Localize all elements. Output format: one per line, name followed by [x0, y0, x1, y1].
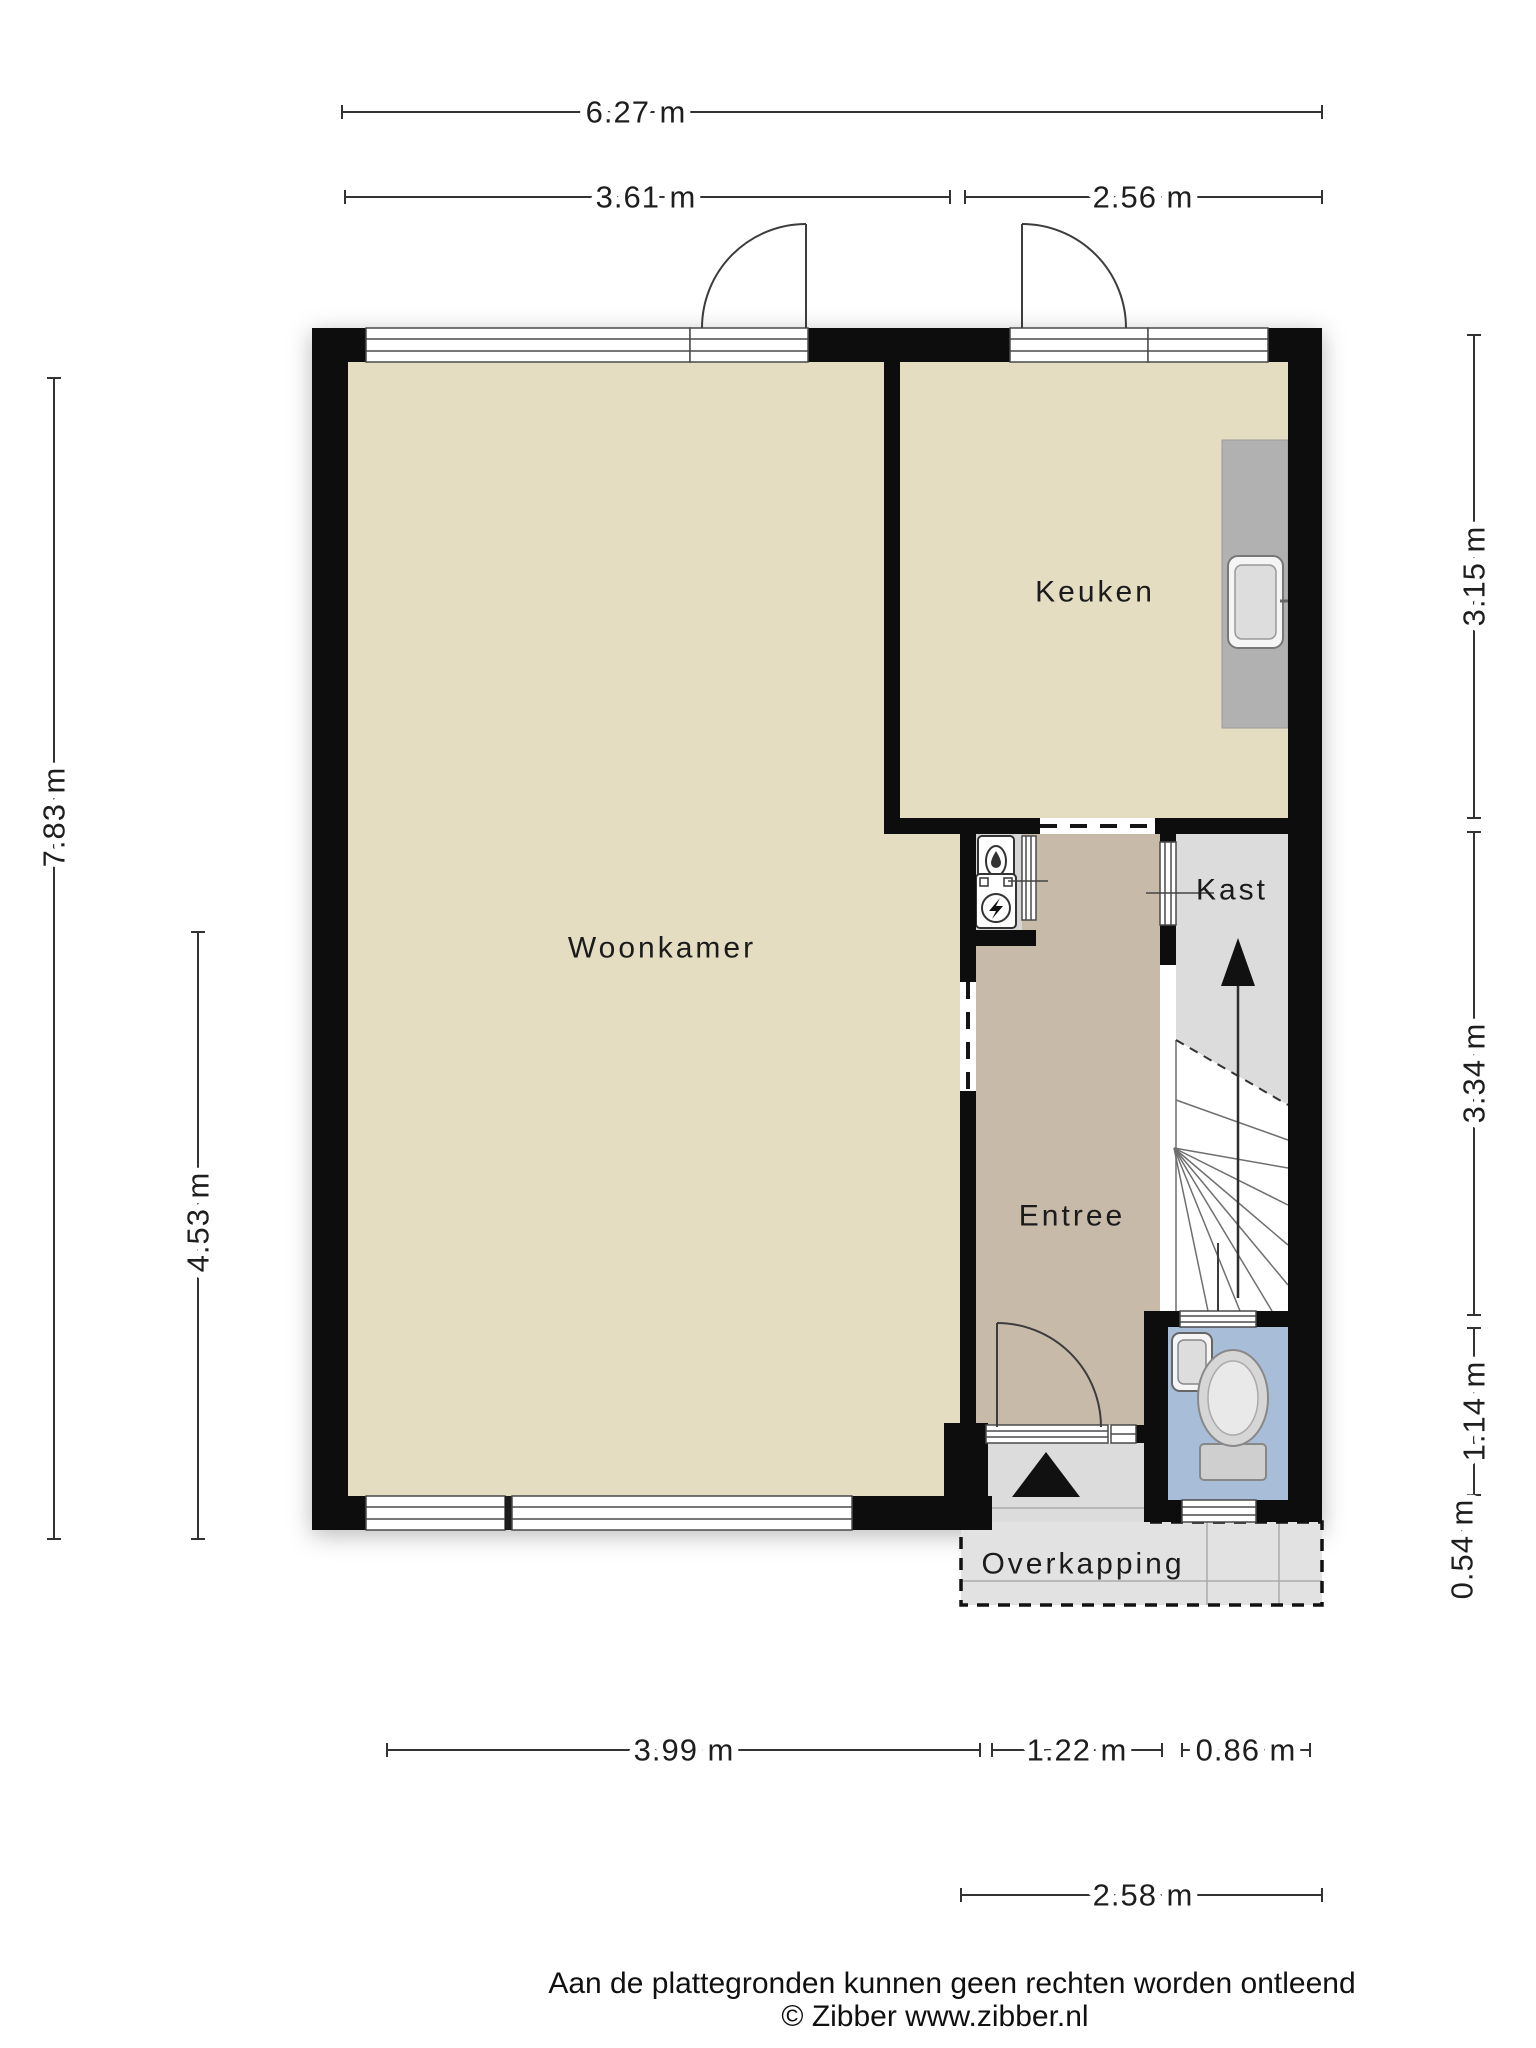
sink-basin [1235, 565, 1276, 639]
footer: Aan de plattegronden kunnen geen rechten… [548, 1967, 1355, 2033]
dimension-toilet-width: 0.86 m [1182, 1733, 1310, 1768]
wall-segment [944, 1423, 988, 1530]
dimension-label: 3.61 m [596, 180, 697, 215]
dimension-total-width: 6.27 m [342, 95, 1322, 130]
wall-woonkamer-keuken [884, 362, 900, 818]
dimension-label: 7.83 m [37, 767, 72, 868]
wall-segment [312, 1496, 366, 1530]
front-door-sill [986, 1425, 1108, 1443]
electric-meter-icon [976, 874, 1016, 928]
window [1182, 1500, 1256, 1522]
wall-keuken-entree [884, 818, 1040, 834]
wall-keuken-kast [1155, 818, 1288, 834]
room-label-overkapping: Overkapping [981, 1548, 1184, 1581]
dimension-label: 2.56 m [1093, 180, 1194, 215]
toilet-tank [1200, 1444, 1266, 1480]
window [1148, 328, 1268, 362]
door-sill-woonkamer [690, 328, 808, 362]
kast-door-frame [1160, 842, 1176, 925]
window-mullion [505, 1496, 512, 1530]
dimension-woonkamer-lower-height: 4.53 m [181, 932, 216, 1539]
room-label-entree: Entree [1019, 1200, 1125, 1233]
wall-segment [1160, 1311, 1180, 1327]
dimension-toilet-height: 1.14 m [1457, 1328, 1492, 1495]
dimension-label: 3.15 m [1457, 526, 1492, 627]
room-label-woonkamer: Woonkamer [568, 932, 756, 965]
dimension-label: 1.14 m [1457, 1361, 1492, 1462]
dimension-keuken-width: 2.56 m [965, 180, 1322, 215]
footer-credit: © Zibber www.zibber.nl [781, 2000, 1088, 2033]
window [512, 1496, 852, 1530]
toilet-door-frame [1180, 1311, 1256, 1327]
wall-left [312, 328, 348, 1530]
window [366, 1496, 505, 1530]
dimension-label: 3.34 m [1457, 1023, 1492, 1124]
stair-open-side [1160, 961, 1176, 1311]
dimension-label: 6.27 m [586, 95, 687, 130]
wall-segment [1256, 1311, 1288, 1327]
room-label-kast: Kast [1196, 874, 1268, 907]
dimension-hal-height: 3.34 m [1457, 832, 1492, 1315]
room-label-keuken: Keuken [1035, 576, 1155, 609]
dimension-label: 3.99 m [634, 1733, 735, 1768]
wall-meterkast [960, 930, 1036, 946]
dimension-total-height: 7.83 m [37, 378, 72, 1539]
wall-woonkamer-entree [960, 834, 976, 982]
woonkamer-floor [348, 362, 960, 1496]
wall-segment [808, 328, 1010, 362]
dimension-label: 0.54 m [1445, 1499, 1480, 1600]
floorplan-page: 6.27 m 3.61 m 2.56 m 7.83 m 4.53 m [0, 0, 1536, 2048]
door-sill-keuken [1010, 328, 1148, 362]
dimension-woonkamer-inner-width: 3.99 m [387, 1733, 980, 1768]
dimension-overkapping-width: 2.58 m [961, 1878, 1322, 1913]
dimension-rear-offset: 0.54 m [1445, 1499, 1480, 1600]
door-swing-arc [702, 224, 806, 328]
dimension-label: 0.86 m [1196, 1733, 1297, 1768]
meterkast-door-frame [1022, 836, 1036, 920]
dimension-woonkamer-width: 3.61 m [345, 180, 950, 215]
toilet-bowl [1208, 1361, 1258, 1435]
meterkast [976, 836, 1016, 928]
wall-segment [1256, 1500, 1288, 1522]
dimension-entree-width: 1.22 m [992, 1733, 1162, 1768]
wall-toilet-left [1144, 1311, 1168, 1522]
dimension-label: 1.22 m [1027, 1733, 1128, 1768]
wall-right [1288, 328, 1322, 1522]
dimension-keuken-height: 3.15 m [1457, 335, 1492, 818]
door-swing-arc [1022, 224, 1126, 328]
dimension-label: 4.53 m [181, 1172, 216, 1273]
wall-segment [1144, 1500, 1182, 1522]
kitchen-fixtures [1222, 440, 1296, 728]
floorplan-canvas: 6.27 m 3.61 m 2.56 m 7.83 m 4.53 m [0, 0, 1536, 2048]
window [366, 328, 690, 362]
dimension-label: 2.58 m [1093, 1878, 1194, 1913]
wall-woonkamer-entree [960, 1091, 976, 1425]
footer-disclaimer: Aan de plattegronden kunnen geen rechten… [548, 1967, 1355, 2000]
